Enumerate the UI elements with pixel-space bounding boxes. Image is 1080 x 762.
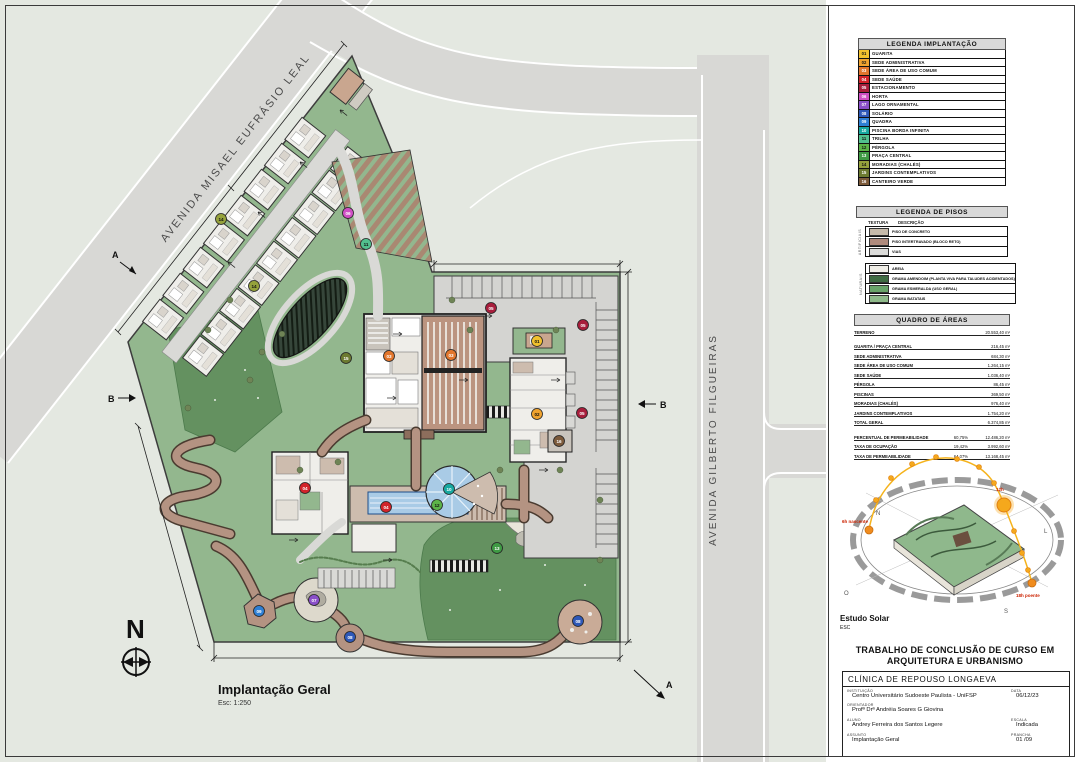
quadro-de-areas: QUADRO DE ÁREAS TERRENO20.553,40 m² GUAR… (854, 314, 1010, 460)
plan-marker: 04 (381, 502, 392, 513)
plan-marker: 03 (446, 350, 457, 361)
plan-marker: 11 (361, 239, 372, 250)
area-row: SEDE ADMINISTRATIVA684,30 m² (854, 350, 1010, 360)
piso-row: GRAMA ESMERALDA (USO GERAL) (866, 284, 1015, 294)
area-row: SEDE ÁREA DE USO COMUM1.264,15 m² (854, 360, 1010, 370)
piso-swatch (869, 265, 889, 273)
svg-text:B: B (660, 400, 667, 410)
piso-swatch (869, 238, 889, 246)
area-row: GUARITA / PRAÇA CENTRAL216,45 m² (854, 341, 1010, 351)
legend-color-chip: 15 (859, 169, 870, 177)
site-plan-drawing: A B B A N AVENIDA MISAEL EUFRÁSIO LEAL A… (0, 0, 826, 762)
legend-item: 07LAGO ORNAMENTAL (859, 101, 1005, 110)
svg-text:03: 03 (448, 353, 454, 358)
plan-marker: 05 (577, 408, 588, 419)
sunrise-label: 6h nascente (842, 519, 869, 524)
area-row: JARDINS CONTEMPLATIVOS1.754,20 m² (854, 407, 1010, 417)
piso-row: PISO DE CONCRETO (866, 227, 1007, 237)
plan-marker: 08 (345, 632, 356, 643)
plan-marker: 06 (343, 208, 354, 219)
cardinal-s: S (1004, 609, 1008, 615)
svg-text:A: A (112, 250, 119, 260)
svg-text:04: 04 (302, 486, 308, 491)
svg-text:02: 02 (534, 412, 540, 417)
area-row: MORADIAS (CHALÉS)976,40 m² (854, 398, 1010, 408)
pisos-group-label: NATURAIS (859, 273, 863, 295)
field-orientador: ORIENTADOR Profª Drª Andréia Soares G Gi… (847, 703, 943, 713)
area-row: PISCINAS369,50 m² (854, 388, 1010, 398)
legend-color-chip: 04 (859, 76, 870, 84)
plan-marker: 13 (492, 543, 503, 554)
legend-item: 16CANTEIRO VERDE (859, 178, 1005, 187)
plan-scale-note: Esc: 1:250 (218, 700, 251, 707)
legend-implantacao-title: LEGENDA IMPLANTAÇÃO (858, 38, 1006, 50)
legend-pisos: LEGENDA DE PISOS TEXTURA DESCRIÇÃO ARTIF… (856, 206, 1008, 310)
plan-marker: 05 (578, 320, 589, 331)
legend-implantacao: LEGENDA IMPLANTAÇÃO 01GUARITA 02SEDE ADM… (858, 38, 1006, 186)
legend-color-chip: 11 (859, 135, 870, 143)
piso-swatch (869, 248, 889, 256)
small-parking (318, 568, 395, 588)
svg-text:09: 09 (256, 609, 262, 614)
sunrise-icon (865, 526, 873, 534)
area-row: TOTAL GERAL6.374,85 m² (854, 417, 1010, 427)
piso-row: GRAMA AMENDOIM (PLANTA VIVA PARA TALUDES… (866, 274, 1015, 284)
panel-divider (828, 6, 829, 756)
svg-text:05: 05 (488, 306, 494, 311)
svg-text:08: 08 (575, 619, 581, 624)
svg-text:08: 08 (347, 635, 353, 640)
svg-text:16: 16 (556, 439, 562, 444)
legend-item: 14MORADIAS (CHALÉS) (859, 161, 1005, 170)
pisos-group-label: ARTIFICIAIS (859, 228, 863, 254)
svg-text:14: 14 (251, 284, 257, 289)
cardinal-o: O (844, 591, 849, 597)
noon-label: 12h (996, 487, 1004, 492)
legend-item: 04SEDE SAÚDE (859, 76, 1005, 85)
quadro-areas-title: QUADRO DE ÁREAS (854, 314, 1010, 326)
crosswalk (430, 560, 488, 572)
svg-text:04: 04 (383, 505, 389, 510)
legend-item: 02SEDE ADMINISTRATIVA (859, 59, 1005, 68)
svg-text:10: 10 (446, 487, 452, 492)
info-panel: LEGENDA IMPLANTAÇÃO 01GUARITA 02SEDE ADM… (836, 0, 1074, 762)
plan-marker: 10 (444, 484, 455, 495)
svg-text:N: N (126, 614, 145, 644)
legend-color-chip: 12 (859, 144, 870, 152)
svg-text:15: 15 (343, 356, 349, 361)
plan-marker: 03 (384, 351, 395, 362)
plan-marker: 15 (341, 353, 352, 364)
svg-text:06: 06 (345, 211, 351, 216)
svg-text:07: 07 (311, 598, 317, 603)
svg-text:05: 05 (580, 323, 586, 328)
piso-row: GRAMA BATATAIS (866, 294, 1015, 304)
piso-row: PISO INTERTRAVADO (BLOCO RETO) (866, 237, 1007, 247)
plan-marker: 04 (300, 483, 311, 494)
svg-text:A: A (666, 680, 673, 690)
plan-marker: 02 (532, 409, 543, 420)
solar-study-scale: ESC (840, 625, 850, 631)
legend-color-chip: 01 (859, 50, 870, 58)
piso-swatch (869, 295, 889, 303)
plan-marker: 01 (532, 336, 543, 347)
area-row: PÉRGOLA86,45 m² (854, 379, 1010, 389)
pisos-group-naturais: NATURAIS AREIA GRAMA AMENDOIM (PLANTA VI… (856, 263, 1008, 304)
cardinal-l: L (1044, 529, 1048, 535)
field-assunto: ASSUNTO Implantação Geral (847, 733, 899, 743)
legend-color-chip: 05 (859, 84, 870, 92)
svg-text:11: 11 (364, 242, 369, 247)
legend-color-chip: 14 (859, 161, 870, 169)
svg-text:05: 05 (579, 411, 585, 416)
project-name: CLÍNICA DE REPOUSO LONGAEVA (843, 672, 1069, 687)
plan-marker: 16 (554, 436, 565, 447)
plan-marker: 14 (249, 281, 260, 292)
drawing-sheet: A B B A N AVENIDA MISAEL EUFRÁSIO LEAL A… (0, 0, 1080, 762)
field-instituicao: INSTITUIÇÃO Centro Universitário Sudoest… (847, 689, 977, 699)
legend-color-chip: 06 (859, 93, 870, 101)
legend-item: 08SOLÁRIO (859, 110, 1005, 119)
plan-title: Implantação Geral (218, 682, 331, 697)
plan-marker: 14 (216, 214, 227, 225)
legend-pisos-columns: TEXTURA DESCRIÇÃO (856, 218, 1008, 226)
svg-text:01: 01 (534, 339, 540, 344)
plan-marker: 08 (573, 616, 584, 627)
legend-item: 12PÉRGOLA (859, 144, 1005, 153)
svg-text:13: 13 (494, 546, 500, 551)
piso-swatch (869, 285, 889, 293)
svg-text:03: 03 (386, 354, 392, 359)
plan-marker: 12 (432, 500, 443, 511)
titleblock: CLÍNICA DE REPOUSO LONGAEVA INSTITUIÇÃO … (842, 671, 1070, 757)
legend-item: 11TRILHA (859, 135, 1005, 144)
field-aluno: ALUNO Andrey Ferreira dos Santos Legere (847, 718, 943, 728)
piso-swatch (869, 228, 889, 236)
area-row: PERCENTUAL DE PERMEABILIDADE60,75%12.486… (854, 431, 1010, 441)
legend-item: 13PRAÇA CENTRAL (859, 152, 1005, 161)
svg-text:B: B (108, 394, 115, 404)
legend-item: 03SEDE ÁREA DE USO COMUM (859, 67, 1005, 76)
field-escala: ESCALA Indicada (1011, 718, 1038, 728)
titleblock-header: TRABALHO DE CONCLUSÃO DE CURSO EM ARQUIT… (842, 645, 1068, 667)
svg-text:12: 12 (434, 503, 440, 508)
street-label-gilberto: AVENIDA GILBERTO FILGUEIRAS (708, 334, 719, 546)
legend-color-chip: 13 (859, 152, 870, 160)
field-prancha: PRANCHA 01 /09 (1011, 733, 1032, 743)
piso-swatch (869, 275, 889, 283)
plan-marker: 05 (486, 303, 497, 314)
plan-marker: 07 (309, 595, 320, 606)
legend-item: 06HORTA (859, 93, 1005, 102)
legend-item: 09QUADRA (859, 118, 1005, 127)
legend-item: 05ESTACIONAMENTO (859, 84, 1005, 93)
sun-icon (997, 498, 1011, 512)
piso-row: VIAS (866, 247, 1007, 257)
legend-color-chip: 07 (859, 101, 870, 109)
legend-color-chip: 09 (859, 118, 870, 126)
building-sede-principal (364, 314, 486, 439)
legend-color-chip: 02 (859, 59, 870, 67)
sunset-icon (1028, 579, 1036, 587)
legend-color-chip: 03 (859, 67, 870, 75)
svg-text:14: 14 (218, 217, 224, 222)
area-row: TERRENO20.553,40 m² (854, 326, 1010, 336)
piso-row: AREIA (866, 264, 1015, 274)
field-data: DATA 06/12/23 (1011, 689, 1039, 699)
legend-item: 10PISCINA BORDA INFINITA (859, 127, 1005, 136)
pisos-group-artificiais: ARTIFICIAIS PISO DE CONCRETO PISO INTERT… (856, 226, 1008, 257)
legend-item: 01GUARITA (859, 50, 1005, 59)
legend-color-chip: 08 (859, 110, 870, 118)
legend-color-chip: 16 (859, 178, 870, 186)
legend-item: 15JARDINS CONTEMPLATIVOS (859, 169, 1005, 178)
legend-color-chip: 10 (859, 127, 870, 135)
legend-pisos-title: LEGENDA DE PISOS (856, 206, 1008, 218)
sunset-label: 18h poente (1016, 593, 1040, 598)
plan-marker: 09 (254, 606, 265, 617)
cardinal-n: N (876, 511, 880, 517)
area-row: SEDE SAÚDE1.036,40 m² (854, 369, 1010, 379)
solar-study-title: Estudo Solar (840, 614, 889, 623)
